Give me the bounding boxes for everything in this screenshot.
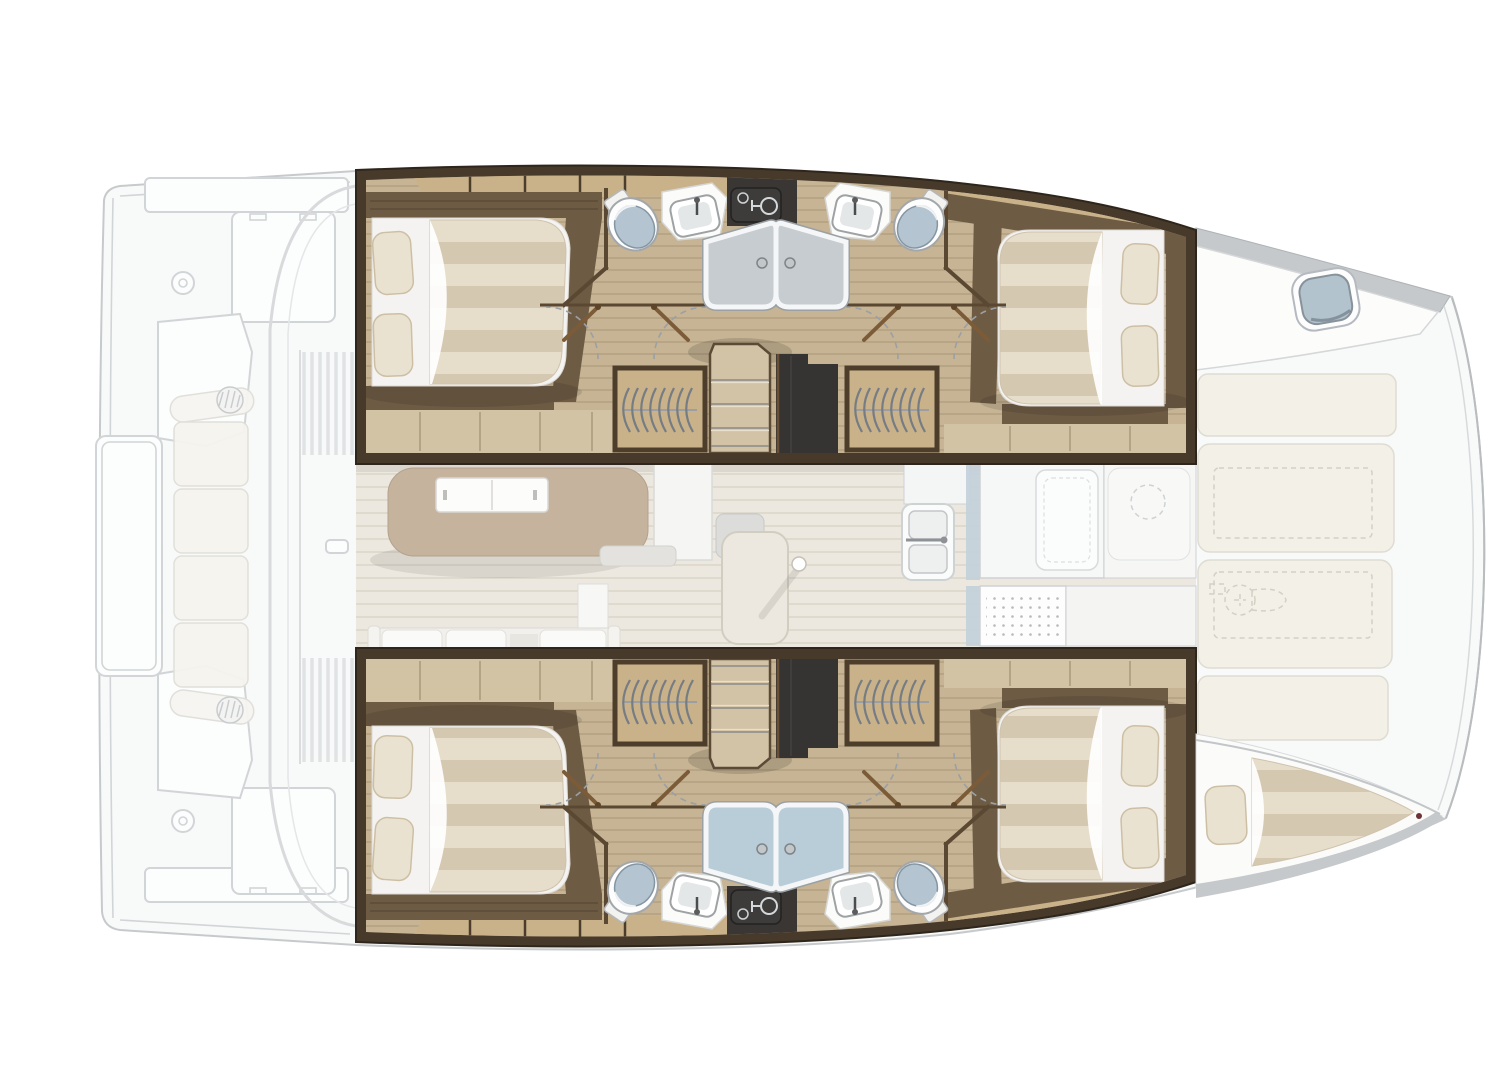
cockpit-table bbox=[96, 436, 162, 676]
galley-sink bbox=[902, 504, 954, 580]
salon bbox=[356, 462, 1196, 656]
deck-panel bbox=[1198, 560, 1392, 668]
dinette-table bbox=[388, 468, 648, 556]
deck-panel bbox=[1198, 676, 1388, 740]
door-handle bbox=[326, 540, 348, 553]
deck-hatch bbox=[1289, 265, 1362, 333]
floor-plan-canvas bbox=[0, 0, 1512, 1080]
salon-partition bbox=[654, 462, 712, 560]
transom-beam bbox=[145, 178, 348, 212]
bench bbox=[600, 546, 676, 566]
deck-panel bbox=[1198, 374, 1396, 436]
port-hull bbox=[356, 166, 1196, 464]
cockpit-bench bbox=[169, 386, 256, 725]
refrigerator bbox=[980, 462, 1104, 578]
engine-hatch bbox=[232, 788, 335, 894]
engine-hatch bbox=[232, 212, 335, 322]
catamaran-floor-plan bbox=[0, 0, 1512, 1080]
starboard-hull bbox=[356, 648, 1196, 946]
pillow bbox=[1205, 785, 1248, 845]
stove bbox=[980, 586, 1066, 646]
deck-panel bbox=[1198, 444, 1394, 552]
hatch-knob bbox=[792, 557, 806, 571]
